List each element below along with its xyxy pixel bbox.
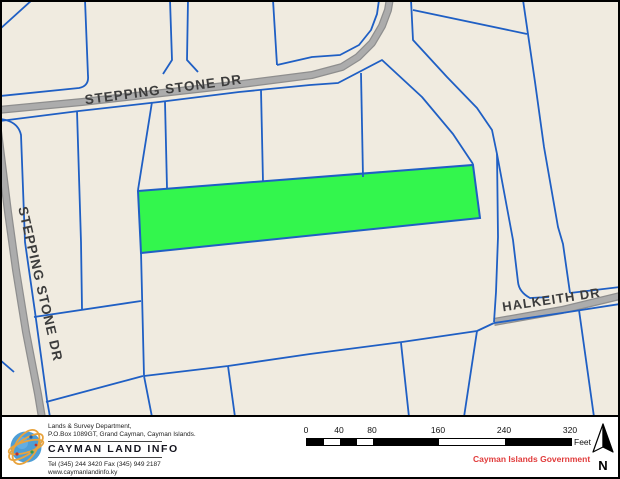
footer: Lands & Survey Department, P.O.Box 1089G… [2, 417, 618, 477]
government-credit: Cayman Islands Government [473, 454, 590, 464]
scale-bar-graphic [306, 438, 572, 446]
map-sheet: STEPPING STONE DR STEPPING STONE DR HALK… [0, 0, 620, 479]
scale-unit-label: Feet [574, 437, 591, 447]
scale-tick-320: 320 [555, 425, 585, 435]
tel-fax: Tel (345) 244 3420 Fax (345) 949 2187 [48, 461, 166, 469]
scale-tick-160: 160 [423, 425, 453, 435]
parcel-map[interactable]: STEPPING STONE DR STEPPING STONE DR HALK… [2, 2, 618, 415]
scale-tick-0: 0 [291, 425, 321, 435]
dept-address-line2: P.O.Box 1089GT, Grand Cayman, Cayman Isl… [48, 431, 166, 439]
north-arrow-icon [590, 422, 616, 456]
scale-tick-240: 240 [489, 425, 519, 435]
north-arrow: N [590, 422, 616, 471]
map-area[interactable]: STEPPING STONE DR STEPPING STONE DR HALK… [2, 2, 618, 417]
cayman-land-info-logo [6, 423, 46, 471]
brand-title: CAYMAN LAND INFO [48, 443, 162, 455]
department-info: Lands & Survey Department, P.O.Box 1089G… [48, 423, 166, 476]
brand-box: CAYMAN LAND INFO [48, 441, 162, 458]
north-label: N [590, 461, 616, 471]
website: www.caymanlandinfo.ky [48, 469, 166, 477]
globe-icon [6, 425, 46, 468]
dept-address-line1: Lands & Survey Department, [48, 423, 166, 431]
contact-info: Tel (345) 244 3420 Fax (345) 949 2187 ww… [48, 461, 166, 476]
scale-tick-80: 80 [357, 425, 387, 435]
scale-tick-40: 40 [324, 425, 354, 435]
scale-bar: 0 40 80 160 240 320 Feet [306, 423, 570, 453]
